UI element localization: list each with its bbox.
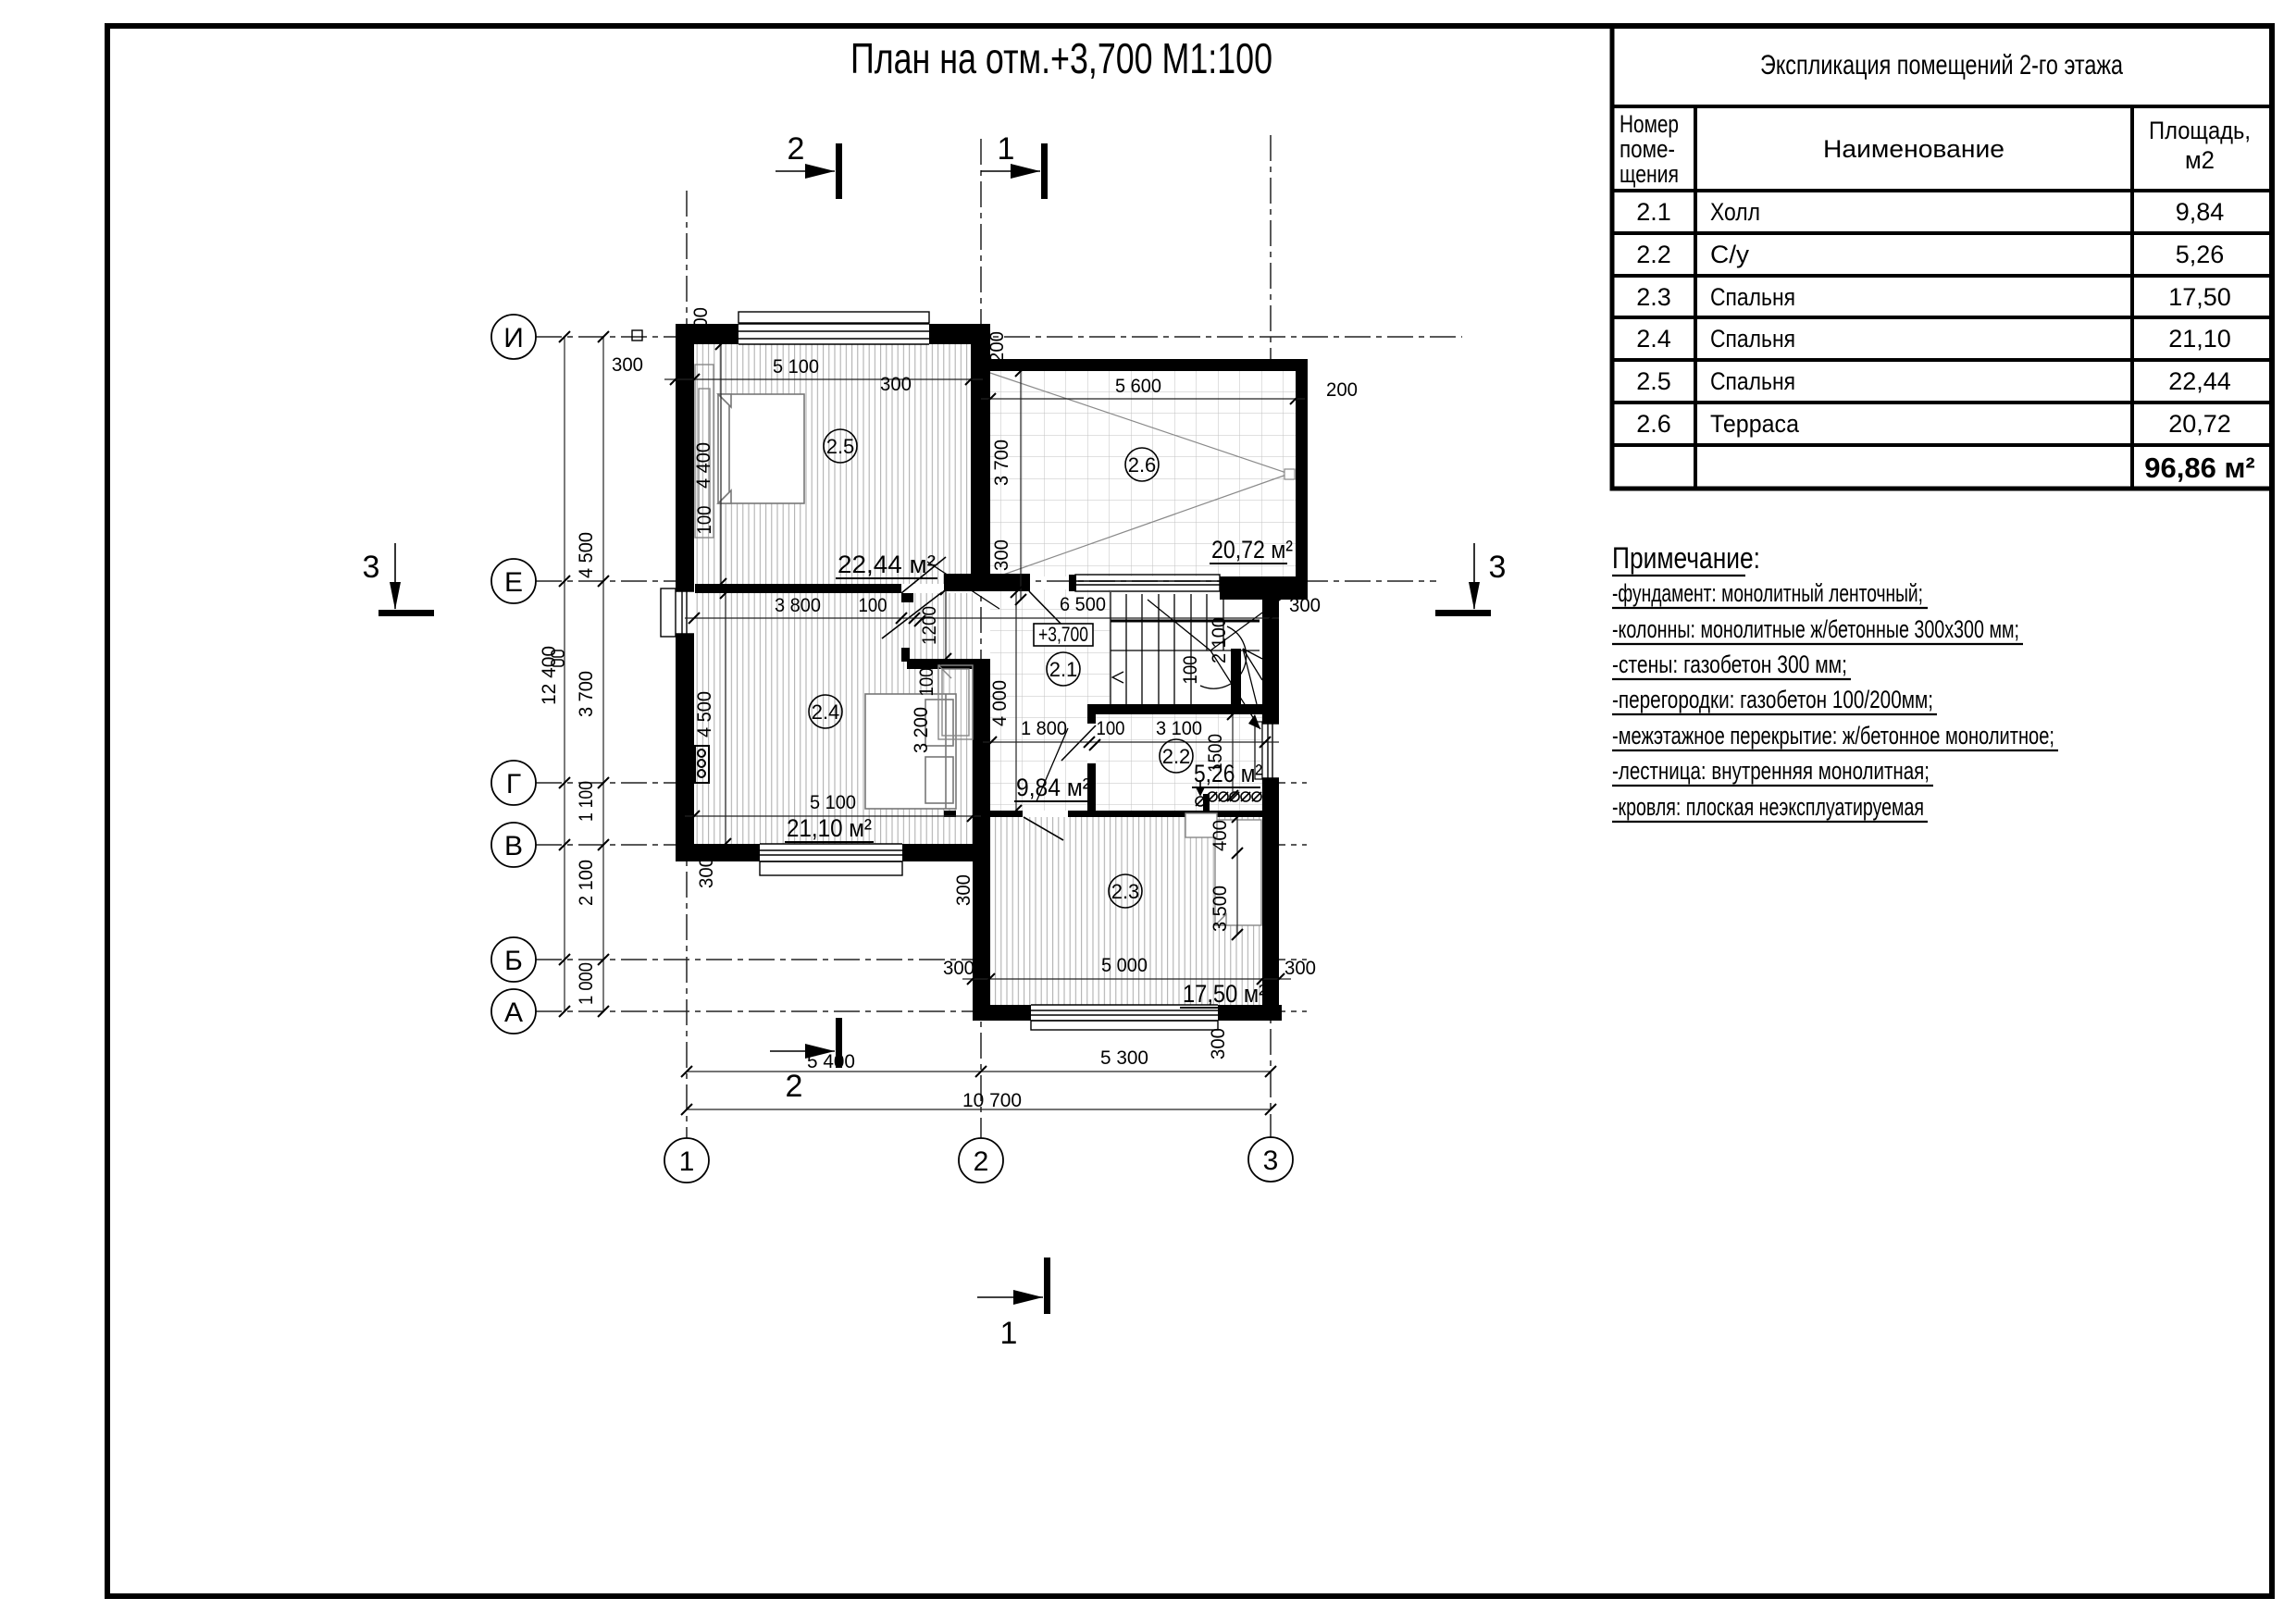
svg-text:2.6: 2.6 (1636, 410, 1671, 438)
svg-text:А: А (504, 997, 523, 1028)
svg-text:96,86 м²: 96,86 м² (2144, 452, 2254, 484)
svg-text:20,72: 20,72 (2168, 410, 2231, 438)
svg-text:6 500: 6 500 (1060, 594, 1106, 615)
svg-text:2: 2 (788, 131, 805, 167)
svg-text:Г: Г (506, 769, 521, 799)
svg-text:3: 3 (1489, 550, 1507, 585)
svg-text:1: 1 (679, 1146, 695, 1177)
svg-text:Спальня: Спальня (1710, 367, 1795, 395)
svg-text:200: 200 (987, 331, 1008, 363)
svg-text:300: 300 (991, 539, 1012, 571)
svg-text:4 500: 4 500 (576, 532, 597, 578)
svg-text:9,84 м²: 9,84 м² (1016, 774, 1090, 801)
svg-text:17,50: 17,50 (2168, 283, 2231, 311)
svg-text:2.1: 2.1 (1636, 198, 1671, 226)
svg-text:Наименование: Наименование (1823, 135, 2004, 163)
svg-text:4 400: 4 400 (693, 442, 714, 489)
svg-text:-перегородки: газобетон 100/2: -перегородки: газобетон 100/200мм; (1612, 686, 1933, 713)
svg-text:3 700: 3 700 (991, 440, 1012, 486)
svg-text:300: 300 (1208, 1028, 1229, 1059)
svg-text:1 000: 1 000 (576, 962, 597, 1005)
svg-text:22,44: 22,44 (2168, 367, 2231, 395)
svg-text:-стены: газобетон 300 мм;: -стены: газобетон 300 мм; (1612, 650, 1847, 678)
svg-text:21,10 м²: 21,10 м² (787, 814, 872, 842)
svg-text:1 800: 1 800 (1021, 718, 1067, 739)
svg-text:Е: Е (504, 567, 523, 598)
svg-text:300: 300 (1289, 595, 1321, 616)
svg-text:20,72 м²: 20,72 м² (1211, 536, 1293, 564)
svg-text:Спальня: Спальня (1710, 325, 1795, 353)
svg-text:300: 300 (612, 354, 643, 376)
svg-text:300: 300 (953, 874, 974, 906)
svg-text:300: 300 (943, 958, 974, 979)
svg-text:5,26 м²: 5,26 м² (1194, 760, 1262, 787)
svg-text:1: 1 (998, 131, 1015, 167)
svg-text:2.2: 2.2 (1636, 241, 1671, 268)
svg-text:5 600: 5 600 (1115, 376, 1161, 397)
svg-text:300: 300 (1285, 958, 1316, 979)
svg-text:1: 1 (1000, 1316, 1018, 1351)
svg-text:2.4: 2.4 (812, 700, 840, 724)
svg-text:2.5: 2.5 (826, 435, 855, 458)
svg-text:3 100: 3 100 (1156, 718, 1202, 739)
svg-text:И: И (503, 323, 524, 353)
svg-text:Экспликация помещений 2-го эта: Экспликация помещений 2-го этажа (1760, 50, 2123, 81)
svg-text:17,50 м²: 17,50 м² (1183, 980, 1266, 1008)
svg-text:4 500: 4 500 (694, 691, 715, 737)
svg-text:5 100: 5 100 (810, 792, 856, 813)
svg-text:3 800: 3 800 (775, 595, 821, 616)
svg-text:м2: м2 (2185, 146, 2215, 174)
svg-text:Площадь,: Площадь, (2149, 117, 2251, 144)
svg-text:9,84: 9,84 (2176, 198, 2225, 226)
svg-text:Примечание:: Примечание: (1612, 541, 1760, 575)
svg-text:200: 200 (1326, 379, 1358, 401)
svg-text:2 100: 2 100 (576, 860, 597, 906)
svg-text:2.3: 2.3 (1111, 880, 1140, 903)
svg-text:2.5: 2.5 (1636, 367, 1671, 395)
svg-text:22,44 м²: 22,44 м² (838, 551, 936, 578)
svg-text:10 700: 10 700 (962, 1090, 1022, 1111)
svg-text:100: 100 (859, 595, 887, 616)
svg-text:2.6: 2.6 (1128, 453, 1157, 477)
svg-text:2.1: 2.1 (1049, 658, 1078, 681)
svg-text:Терраса: Терраса (1710, 410, 1800, 438)
svg-text:3 500: 3 500 (1210, 886, 1231, 932)
svg-text:4 000: 4 000 (989, 680, 1011, 726)
svg-text:3: 3 (363, 550, 380, 585)
svg-text:1 100: 1 100 (576, 781, 597, 822)
svg-text:100: 100 (916, 668, 937, 697)
svg-text:5,26: 5,26 (2176, 241, 2225, 268)
svg-text:В: В (504, 831, 523, 861)
svg-text:-колонны: монолитные ж/бетонны: -колонны: монолитные ж/бетонные 300х300 … (1612, 615, 2019, 643)
svg-text:2.4: 2.4 (1636, 325, 1671, 353)
svg-text:2.3: 2.3 (1636, 283, 1671, 311)
svg-text:2.2: 2.2 (1162, 745, 1191, 768)
svg-text:Б: Б (504, 946, 523, 976)
svg-text:400: 400 (1210, 820, 1231, 851)
svg-text:Номер: Номер (1620, 110, 1679, 138)
svg-text:5 000: 5 000 (1101, 955, 1148, 976)
svg-text:3 700: 3 700 (576, 671, 597, 717)
svg-text:поме-: поме- (1620, 135, 1675, 163)
svg-text:12 400: 12 400 (539, 646, 560, 705)
svg-text:21,10: 21,10 (2168, 325, 2231, 353)
svg-text:-фундамент: монолитный ленточн: -фундамент: монолитный ленточный; (1612, 579, 1923, 607)
svg-text:300: 300 (880, 374, 912, 395)
svg-text:Спальня: Спальня (1710, 283, 1795, 311)
svg-text:100: 100 (694, 506, 715, 535)
svg-text:100: 100 (1180, 656, 1201, 685)
svg-text:100: 100 (1097, 718, 1125, 739)
svg-text:3 200: 3 200 (911, 707, 932, 753)
svg-text:щения: щения (1620, 160, 1679, 188)
svg-text:Холл: Холл (1710, 198, 1760, 226)
svg-text:1200: 1200 (919, 606, 940, 645)
svg-text:300: 300 (690, 307, 712, 339)
svg-text:С/у: С/у (1710, 241, 1750, 268)
svg-text:+3,700: +3,700 (1038, 623, 1088, 646)
svg-text:300: 300 (696, 857, 717, 888)
svg-text:2: 2 (974, 1146, 989, 1177)
svg-text:2: 2 (786, 1069, 803, 1104)
svg-text:-кровля: плоская неэксплуатиру: -кровля: плоская неэксплуатируемая (1612, 793, 1924, 821)
svg-text:-лестница: внутренняя монолит: -лестница: внутренняя монолитная; (1612, 757, 1930, 785)
svg-text:-межэтажное перекрытие: ж/бето: -межэтажное перекрытие: ж/бетонное монол… (1612, 722, 2054, 750)
svg-text:3: 3 (1263, 1146, 1279, 1176)
svg-text:5 300: 5 300 (1100, 1047, 1148, 1069)
svg-text:План на отм.+3,700 М1:100: План на отм.+3,700 М1:100 (850, 34, 1272, 82)
svg-text:5 100: 5 100 (773, 356, 819, 378)
svg-text:2 100: 2 100 (1209, 617, 1230, 663)
